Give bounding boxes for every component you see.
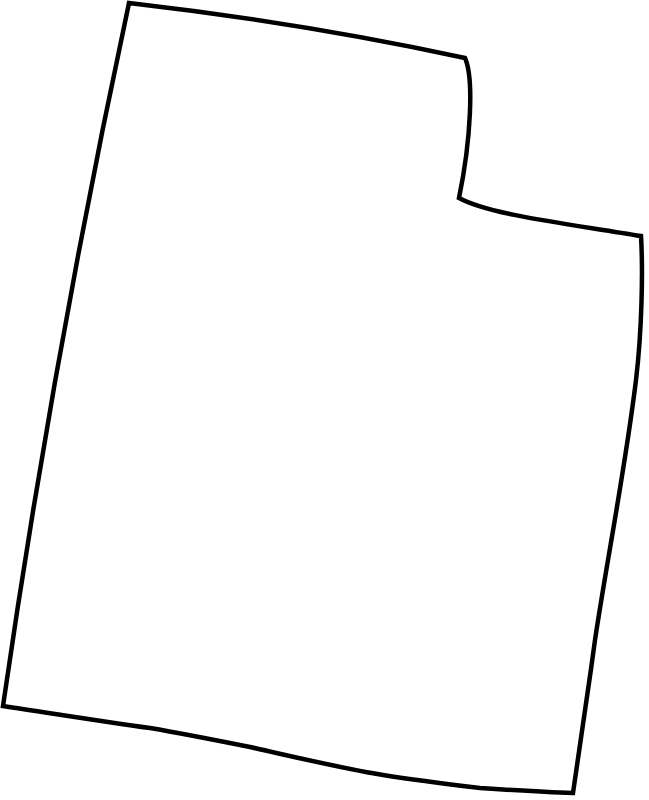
state-outline-path xyxy=(3,3,642,793)
utah-outline-map xyxy=(0,0,649,800)
page-background xyxy=(0,0,649,800)
